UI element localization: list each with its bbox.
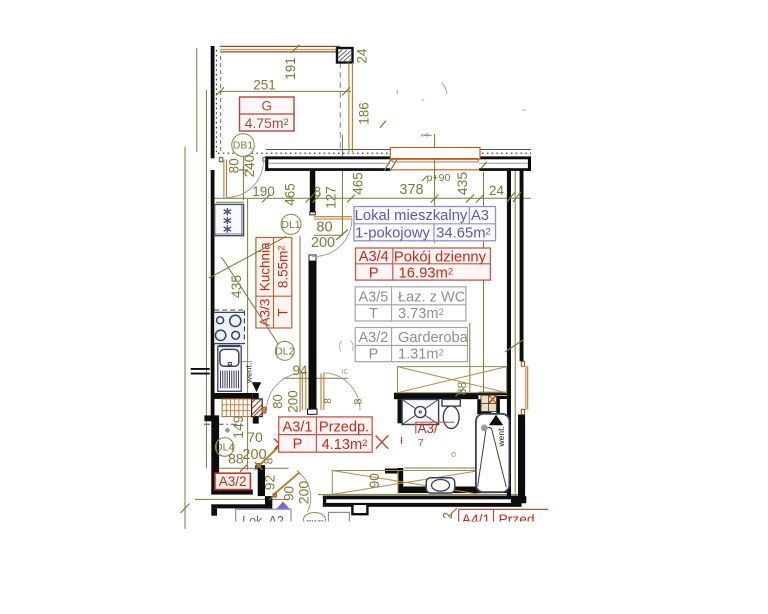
svg-text:88: 88 <box>455 382 469 396</box>
svg-text:A3/2: A3/2 <box>358 330 388 346</box>
svg-text:ıc: ıc <box>341 366 349 376</box>
svg-text:92: 92 <box>262 475 278 491</box>
svg-text:p+90: p+90 <box>427 172 451 184</box>
svg-text:191: 191 <box>283 57 298 80</box>
svg-text:A3/: A3/ <box>418 421 439 436</box>
svg-text:A3/5: A3/5 <box>358 289 388 305</box>
svg-text:200: 200 <box>296 481 312 505</box>
svg-text:8: 8 <box>323 398 334 404</box>
svg-text:90: 90 <box>367 473 382 488</box>
svg-text:A3: A3 <box>471 208 489 224</box>
svg-text:P: P <box>369 266 379 282</box>
svg-text:94: 94 <box>292 363 308 378</box>
svg-text:DL1: DL1 <box>281 219 300 231</box>
svg-text:A3/1: A3/1 <box>282 419 312 435</box>
svg-text:A3/3: A3/3 <box>258 299 273 327</box>
svg-text:Kuchnia: Kuchnia <box>258 242 273 291</box>
svg-text:went.: went. <box>244 363 254 384</box>
svg-text:186: 186 <box>357 102 372 125</box>
svg-text:200: 200 <box>285 390 300 413</box>
svg-text:Pokój dzienny: Pokój dzienny <box>394 249 487 265</box>
svg-text:16.93m2: 16.93m2 <box>399 266 454 282</box>
svg-text:24: 24 <box>355 48 370 64</box>
svg-text:90: 90 <box>281 486 296 501</box>
svg-text:80: 80 <box>316 220 332 236</box>
svg-text:Lokal mieszkalny: Lokal mieszkalny <box>355 208 468 224</box>
svg-text:P: P <box>293 437 303 453</box>
svg-text:3.73m2: 3.73m2 <box>398 306 444 322</box>
svg-text:378: 378 <box>399 182 423 198</box>
svg-text:7: 7 <box>418 438 424 449</box>
svg-text:4.75m2: 4.75m2 <box>245 115 289 131</box>
svg-text:251: 251 <box>253 78 276 93</box>
svg-text:200: 200 <box>311 235 335 251</box>
svg-text:T: T <box>369 306 378 322</box>
svg-text:8.55m2: 8.55m2 <box>275 246 290 289</box>
svg-text:T: T <box>275 308 290 316</box>
svg-text:465: 465 <box>283 183 298 206</box>
svg-text:2: 2 <box>440 512 455 519</box>
svg-text:80: 80 <box>227 158 242 173</box>
svg-text:240: 240 <box>242 155 257 178</box>
svg-text:P: P <box>369 347 379 363</box>
svg-text:127: 127 <box>324 186 339 209</box>
svg-text:435: 435 <box>454 172 470 196</box>
svg-text:88: 88 <box>228 451 244 467</box>
svg-text:o: o <box>451 449 456 459</box>
svg-text:24: 24 <box>489 183 505 198</box>
svg-text:Przedp.: Przedp. <box>319 420 369 436</box>
svg-text:Łaz. z WC: Łaz. z WC <box>398 289 465 305</box>
svg-text:149: 149 <box>230 415 246 439</box>
svg-text:1-pokojowy: 1-pokojowy <box>355 226 430 242</box>
svg-text:435: 435 <box>228 275 244 299</box>
svg-text:DL2: DL2 <box>275 346 294 358</box>
svg-text:1.31m2: 1.31m2 <box>398 347 444 363</box>
svg-text:8: 8 <box>261 457 275 464</box>
svg-text:G: G <box>261 99 272 114</box>
svg-text:80: 80 <box>270 394 285 408</box>
svg-text:4.13m2: 4.13m2 <box>322 437 368 453</box>
svg-text:8: 8 <box>353 398 365 404</box>
svg-text:465: 465 <box>351 172 366 195</box>
svg-text:70: 70 <box>247 429 263 445</box>
svg-text:DB1: DB1 <box>233 140 254 152</box>
svg-text:34.65m2: 34.65m2 <box>436 226 491 242</box>
svg-text:went.: went. <box>496 426 506 447</box>
svg-text:A3/2: A3/2 <box>219 474 247 489</box>
svg-text:190: 190 <box>252 184 275 199</box>
svg-text:A3/4: A3/4 <box>359 249 389 265</box>
svg-text:Garderoba: Garderoba <box>398 330 469 346</box>
